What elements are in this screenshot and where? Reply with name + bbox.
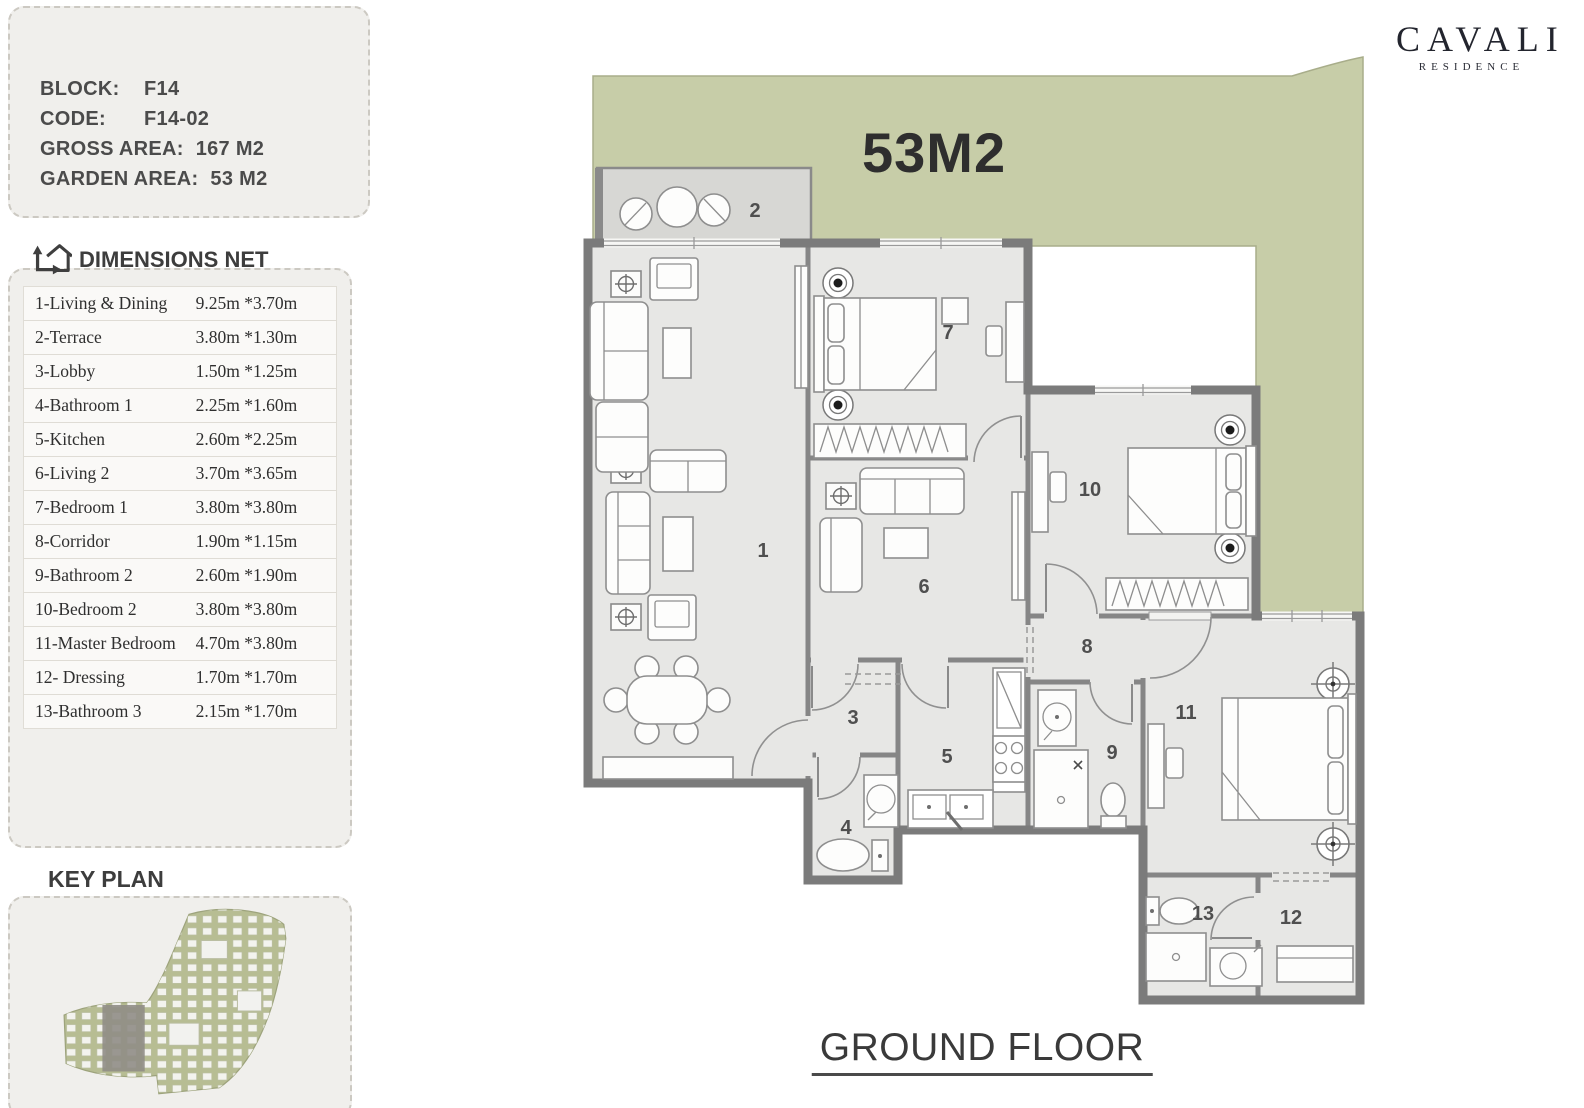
dimension-row: 6-Living 23.70m *3.65m [24, 457, 337, 491]
info-label: BLOCK: [40, 78, 132, 101]
dimension-room-name: 13-Bathroom 3 [24, 695, 196, 729]
floor-plan: 12345678910111213 [560, 40, 1380, 1020]
dimension-room-size: 3.80m *3.80m [196, 491, 337, 525]
info-row: GARDEN AREA:53 M2 [40, 168, 368, 191]
dimension-room-name: 4-Bathroom 1 [24, 389, 196, 423]
info-value: F14 [144, 78, 179, 101]
room-number-4: 4 [840, 817, 852, 839]
room-number-2: 2 [749, 200, 760, 222]
room-number-6: 6 [918, 576, 929, 598]
dimension-room-size: 3.70m *3.65m [196, 457, 337, 491]
info-value: 167 M2 [196, 138, 265, 161]
dimension-room-name: 1-Living & Dining [24, 287, 196, 321]
info-row: BLOCK:F14 [40, 78, 368, 101]
dimension-room-size: 3.80m *3.80m [196, 593, 337, 627]
dimension-row: 2-Terrace3.80m *1.30m [24, 321, 337, 355]
dimension-room-name: 10-Bedroom 2 [24, 593, 196, 627]
info-label: CODE: [40, 108, 132, 131]
dimension-room-size: 1.70m *1.70m [196, 661, 337, 695]
dimension-room-name: 8-Corridor [24, 525, 196, 559]
dimension-room-name: 7-Bedroom 1 [24, 491, 196, 525]
furniture-dressing [1277, 946, 1353, 982]
dimension-room-size: 1.50m *1.25m [196, 355, 337, 389]
dimension-row: 11-Master Bedroom4.70m *3.80m [24, 627, 337, 661]
dimension-row: 4-Bathroom 12.25m *1.60m [24, 389, 337, 423]
info-label: GROSS AREA: [40, 138, 184, 161]
info-row: CODE:F14-02 [40, 108, 368, 131]
room-number-9: 9 [1106, 742, 1117, 764]
dimension-row: 3-Lobby1.50m *1.25m [24, 355, 337, 389]
info-value: 53 M2 [210, 168, 267, 191]
garden-area-label: 53M2 [862, 120, 1006, 185]
rooms [588, 243, 1360, 1000]
room-number-1: 1 [757, 540, 768, 562]
dimension-row: 12- Dressing1.70m *1.70m [24, 661, 337, 695]
highlighted-block-f14 [102, 1005, 144, 1072]
brand-logo: CAVALI RESIDENCE [1396, 18, 1542, 73]
room-number-11: 11 [1175, 702, 1196, 724]
dimension-row: 5-Kitchen2.60m *2.25m [24, 423, 337, 457]
room-number-10: 10 [1079, 479, 1101, 501]
room-number-5: 5 [941, 746, 952, 768]
dimension-room-name: 12- Dressing [24, 661, 196, 695]
info-panel: BLOCK:F14CODE:F14-02GROSS AREA:167 M2GAR… [8, 6, 370, 218]
dimensions-title: DIMENSIONS NET [79, 247, 268, 273]
brand-name: CAVALI [1396, 18, 1549, 60]
page: BLOCK:F14CODE:F14-02GROSS AREA:167 M2GAR… [0, 0, 1584, 1108]
room-number-8: 8 [1081, 636, 1092, 658]
dimension-room-size: 9.25m *3.70m [196, 287, 337, 321]
terrace [595, 168, 811, 245]
info-panel-rows: BLOCK:F14CODE:F14-02GROSS AREA:167 M2GAR… [40, 78, 368, 191]
room-number-13: 13 [1192, 903, 1214, 925]
rotate-house-icon [28, 240, 72, 280]
dimension-room-size: 2.15m *1.70m [196, 695, 337, 729]
dimension-room-name: 3-Lobby [24, 355, 196, 389]
info-value: F14-02 [144, 108, 209, 131]
dimension-room-size: 2.60m *1.90m [196, 559, 337, 593]
dimension-row: 9-Bathroom 22.60m *1.90m [24, 559, 337, 593]
room-number-12: 12 [1280, 907, 1302, 929]
brand-subtitle: RESIDENCE [1396, 61, 1547, 73]
key-plan-title: KEY PLAN [48, 866, 164, 893]
room-number-3: 3 [847, 707, 858, 729]
dimensions-panel: 1-Living & Dining9.25m *3.70m2-Terrace3.… [8, 268, 352, 848]
key-plan-panel [8, 896, 352, 1108]
dimension-row: 7-Bedroom 13.80m *3.80m [24, 491, 337, 525]
dimension-row: 1-Living & Dining9.25m *3.70m [24, 287, 337, 321]
dimension-room-name: 6-Living 2 [24, 457, 196, 491]
dimension-room-name: 2-Terrace [24, 321, 196, 355]
floor-label: GROUND FLOOR [812, 1026, 1153, 1076]
dimensions-header: DIMENSIONS NET [28, 240, 268, 280]
dimension-room-size: 1.90m *1.15m [196, 525, 337, 559]
key-plan-map [50, 902, 312, 1108]
dimension-row: 8-Corridor1.90m *1.15m [24, 525, 337, 559]
dimensions-table-body: 1-Living & Dining9.25m *3.70m2-Terrace3.… [24, 287, 337, 729]
dimension-room-size: 2.60m *2.25m [196, 423, 337, 457]
dimension-row: 13-Bathroom 32.15m *1.70m [24, 695, 337, 729]
dimension-room-size: 4.70m *3.80m [196, 627, 337, 661]
dimension-room-name: 11-Master Bedroom [24, 627, 196, 661]
dimension-room-name: 9-Bathroom 2 [24, 559, 196, 593]
info-label: GARDEN AREA: [40, 168, 198, 191]
dimension-room-name: 5-Kitchen [24, 423, 196, 457]
room-number-7: 7 [942, 322, 953, 344]
dimension-room-size: 2.25m *1.60m [196, 389, 337, 423]
dimensions-table: 1-Living & Dining9.25m *3.70m2-Terrace3.… [23, 286, 337, 729]
dimension-row: 10-Bedroom 23.80m *3.80m [24, 593, 337, 627]
info-row: GROSS AREA:167 M2 [40, 138, 368, 161]
dimension-room-size: 3.80m *1.30m [196, 321, 337, 355]
